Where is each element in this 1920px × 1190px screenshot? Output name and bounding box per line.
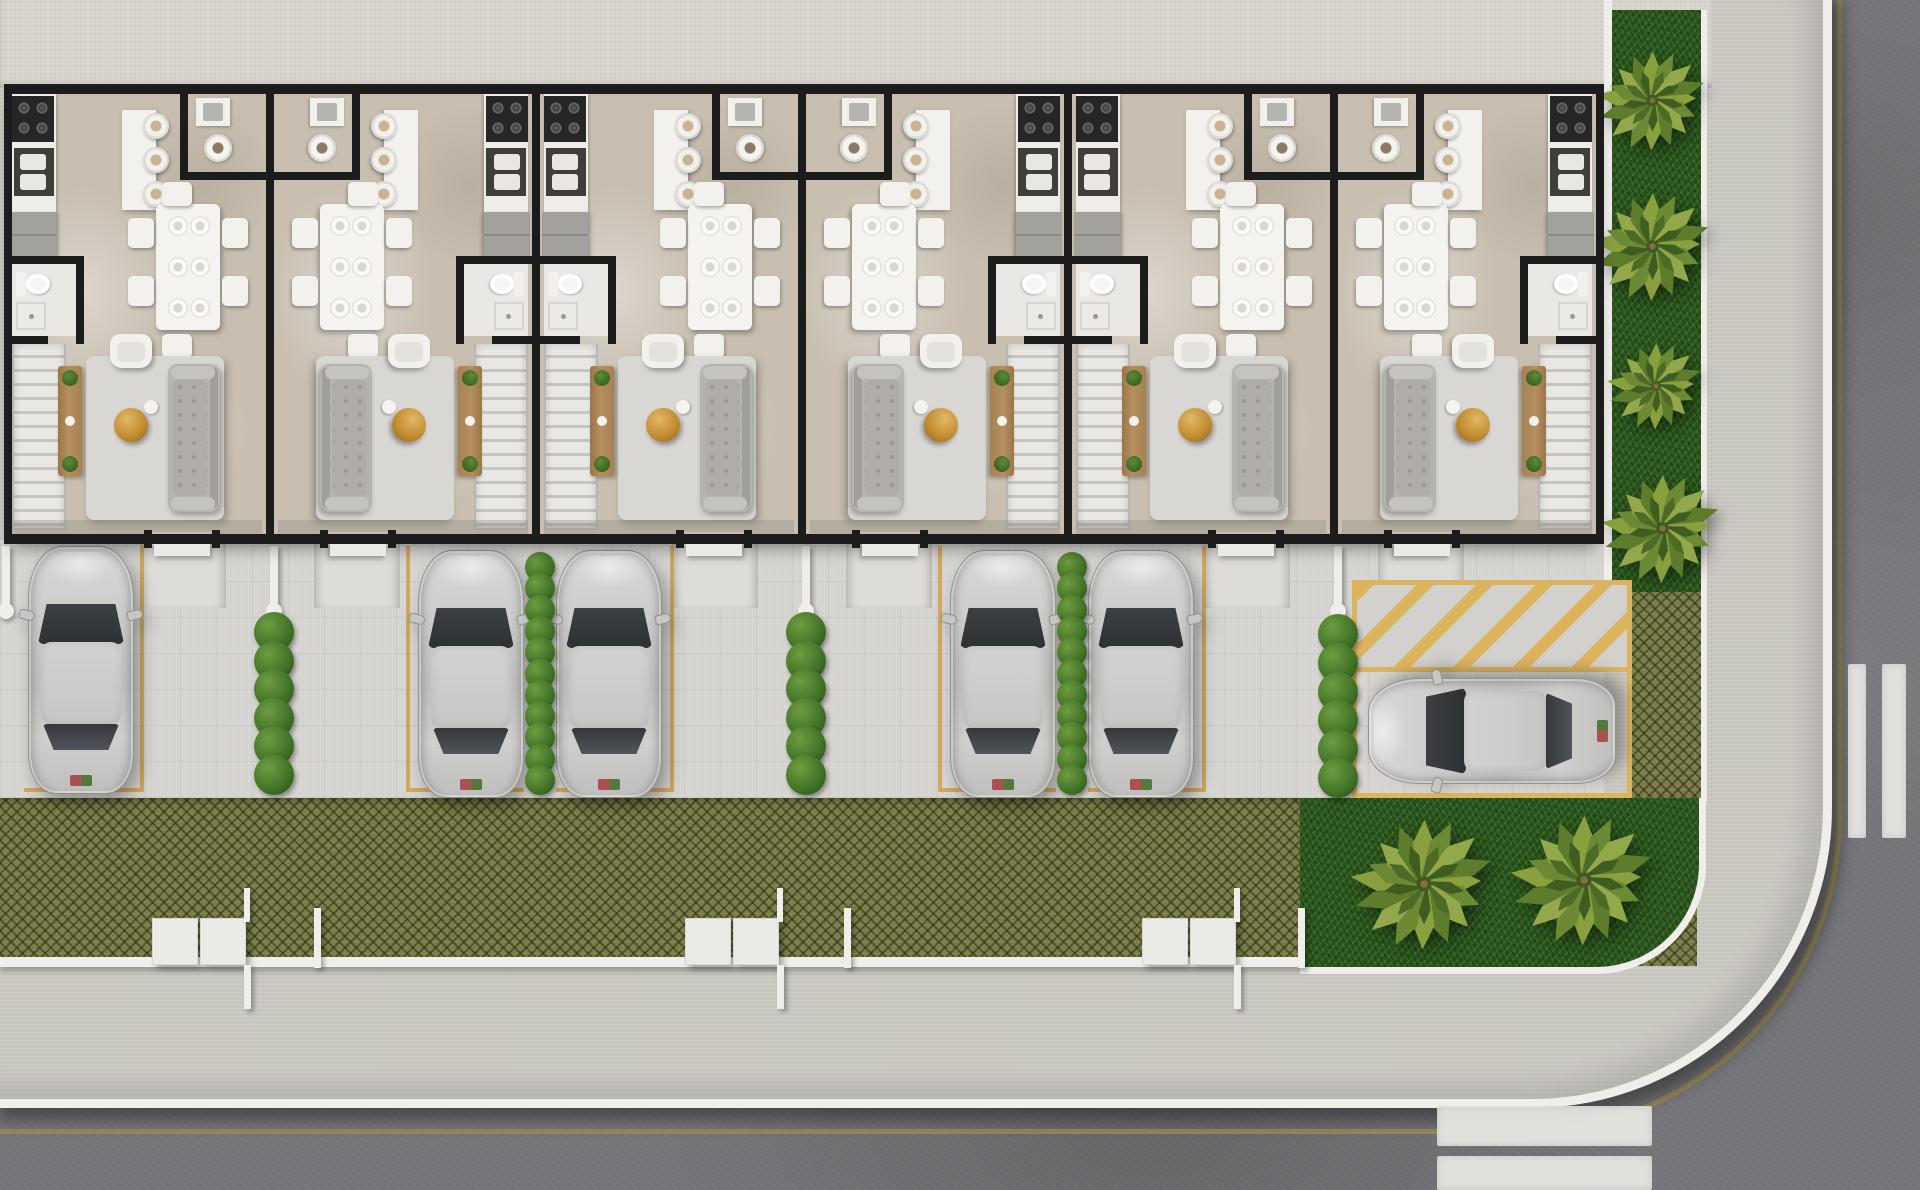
hedge-bush bbox=[786, 755, 826, 795]
bathroom-wall bbox=[1556, 336, 1596, 344]
dining-chair bbox=[918, 276, 944, 306]
plant bbox=[1126, 370, 1142, 386]
toilet-bowl bbox=[26, 274, 50, 294]
cooktop bbox=[12, 96, 54, 142]
bar-stool bbox=[1207, 147, 1233, 173]
plate bbox=[190, 298, 210, 318]
powder-room-wall bbox=[352, 92, 360, 180]
sink-bowl bbox=[1026, 154, 1052, 170]
dining-chair bbox=[1450, 276, 1476, 306]
burner-icon bbox=[1556, 102, 1568, 114]
plate bbox=[168, 298, 188, 318]
drain-icon bbox=[1570, 314, 1575, 319]
dining-chair bbox=[386, 218, 412, 248]
car-rear-window bbox=[571, 728, 647, 754]
divider-wall bbox=[1334, 546, 1342, 610]
coffee-table bbox=[924, 408, 958, 442]
vanity bbox=[842, 98, 876, 126]
vanity-sink bbox=[849, 103, 869, 121]
cooktop bbox=[486, 96, 528, 142]
toilet-tank bbox=[1578, 272, 1588, 296]
cooktop bbox=[544, 96, 586, 142]
toilet-bowl bbox=[1554, 274, 1578, 294]
drain-icon bbox=[29, 314, 34, 319]
hedge-bush bbox=[1057, 765, 1087, 795]
burner-icon bbox=[1100, 122, 1112, 134]
terrace-strip bbox=[1342, 520, 1592, 534]
burner-icon bbox=[492, 102, 504, 114]
car-hood bbox=[1102, 556, 1180, 600]
car-hood bbox=[964, 556, 1042, 600]
plate bbox=[330, 257, 350, 277]
dining-chair bbox=[348, 334, 378, 358]
shower-tray bbox=[16, 302, 46, 330]
plate bbox=[700, 216, 720, 236]
basin bbox=[840, 134, 868, 162]
sofa-armrest bbox=[857, 497, 901, 510]
car-rear-window bbox=[43, 724, 119, 750]
hedge-bush bbox=[254, 755, 294, 795]
sofa-armrest bbox=[1235, 497, 1279, 510]
drain-icon bbox=[561, 314, 566, 319]
car-badge bbox=[1130, 779, 1152, 790]
no-parking-hatch bbox=[1352, 580, 1632, 672]
sofa bbox=[1384, 364, 1436, 512]
shower-tray bbox=[1558, 302, 1588, 330]
toilet-tank bbox=[548, 272, 558, 296]
bathroom-wall bbox=[8, 336, 48, 344]
bar-stool bbox=[1435, 113, 1461, 139]
sofa-cushions bbox=[173, 380, 207, 496]
dining-chair bbox=[128, 276, 154, 306]
side-tray bbox=[1446, 400, 1460, 414]
dining-chair bbox=[824, 276, 850, 306]
party-wall bbox=[532, 84, 540, 544]
bathroom-wall bbox=[76, 256, 84, 344]
sofa-armrest bbox=[325, 366, 369, 379]
sofa-armrest bbox=[703, 366, 747, 379]
staircase bbox=[1538, 344, 1592, 530]
party-wall bbox=[266, 84, 274, 544]
side-tray bbox=[144, 400, 158, 414]
vanity-sink bbox=[1381, 103, 1401, 121]
car-roof bbox=[1101, 646, 1181, 728]
coffee-table bbox=[646, 408, 680, 442]
armchair bbox=[1174, 334, 1216, 368]
armchair bbox=[388, 334, 430, 368]
plate bbox=[352, 298, 372, 318]
sofa-cushions bbox=[865, 380, 899, 496]
kitchen-sink bbox=[14, 148, 54, 196]
car-badge bbox=[70, 775, 92, 786]
sofa bbox=[1232, 364, 1284, 512]
staircase bbox=[474, 344, 528, 530]
plant bbox=[62, 370, 78, 386]
burner-icon bbox=[1100, 102, 1112, 114]
divider-wall bbox=[270, 546, 278, 610]
sofa-armrest bbox=[857, 366, 901, 379]
car-badge bbox=[1597, 720, 1608, 742]
burner-icon bbox=[1024, 122, 1036, 134]
powder-room-wall bbox=[180, 92, 188, 180]
dining-chair bbox=[1412, 334, 1442, 358]
car-windshield bbox=[960, 608, 1046, 648]
armchair bbox=[642, 334, 684, 368]
plate bbox=[1254, 216, 1274, 236]
bathroom-wall bbox=[1072, 256, 1148, 264]
vanity bbox=[196, 98, 230, 126]
dining-chair bbox=[1226, 182, 1256, 206]
armchair-seat bbox=[649, 342, 677, 362]
burner-icon bbox=[568, 102, 580, 114]
sofa-back bbox=[1386, 368, 1394, 508]
hedge-bush bbox=[525, 765, 555, 795]
armchair-seat bbox=[927, 342, 955, 362]
armchair bbox=[110, 334, 152, 368]
fridge bbox=[1074, 212, 1120, 260]
parking-line bbox=[1202, 546, 1206, 792]
plate bbox=[352, 257, 372, 277]
bar-stool bbox=[143, 113, 169, 139]
bathroom-wall bbox=[1520, 256, 1528, 344]
sink-bowl bbox=[1084, 174, 1110, 190]
basin bbox=[308, 134, 336, 162]
toilet-tank bbox=[1080, 272, 1090, 296]
plate bbox=[1394, 298, 1414, 318]
dining-chair bbox=[1412, 182, 1442, 206]
dining-table bbox=[852, 204, 916, 330]
car-hood bbox=[432, 556, 510, 600]
bar-stool bbox=[903, 147, 929, 173]
dining-chair bbox=[918, 218, 944, 248]
vase bbox=[597, 416, 607, 426]
plate bbox=[1394, 216, 1414, 236]
unit-5 bbox=[1068, 84, 1334, 544]
burner-icon bbox=[1042, 102, 1054, 114]
plate bbox=[1232, 298, 1252, 318]
hedge-bush bbox=[1318, 758, 1358, 798]
armchair-seat bbox=[1459, 342, 1487, 362]
basin bbox=[1268, 134, 1296, 162]
dining-chair bbox=[880, 182, 910, 206]
terrace-strip bbox=[544, 520, 794, 534]
plate bbox=[700, 257, 720, 277]
party-wall bbox=[1064, 84, 1072, 544]
sink-bowl bbox=[1026, 174, 1052, 190]
powder-room-wall bbox=[712, 92, 720, 180]
plate bbox=[862, 257, 882, 277]
vanity bbox=[1260, 98, 1294, 126]
dining-table bbox=[1384, 204, 1448, 330]
burner-icon bbox=[36, 102, 48, 114]
toilet-bowl bbox=[490, 274, 514, 294]
burner-icon bbox=[510, 102, 522, 114]
fridge-seam bbox=[10, 234, 56, 236]
sink-bowl bbox=[1084, 154, 1110, 170]
car-hood bbox=[570, 556, 648, 600]
burner-icon bbox=[1574, 122, 1586, 134]
crosswalk-bar bbox=[1437, 1156, 1652, 1190]
sink-bowl bbox=[1558, 174, 1584, 190]
coffee-table bbox=[1456, 408, 1490, 442]
dining-chair bbox=[348, 182, 378, 206]
armchair-seat bbox=[1181, 342, 1209, 362]
car-windshield bbox=[566, 608, 652, 648]
dining-chair bbox=[694, 334, 724, 358]
bathroom-wall bbox=[540, 336, 580, 344]
fridge-seam bbox=[542, 234, 588, 236]
unit-3 bbox=[536, 84, 802, 544]
exterior-wall-right bbox=[1596, 84, 1604, 544]
dining-chair bbox=[162, 182, 192, 206]
toilet-bowl bbox=[558, 274, 582, 294]
fridge bbox=[1016, 212, 1062, 260]
dining-chair bbox=[292, 218, 318, 248]
kitchen-sink bbox=[546, 148, 586, 196]
rear-yard-strip bbox=[0, 0, 1712, 88]
plate bbox=[1254, 298, 1274, 318]
cooktop bbox=[1550, 96, 1592, 142]
dining-chair bbox=[292, 276, 318, 306]
side-tray bbox=[914, 400, 928, 414]
car-roof bbox=[41, 642, 121, 724]
toilet-tank bbox=[1046, 272, 1056, 296]
bathroom-wall bbox=[540, 256, 616, 264]
powder-room-wall bbox=[1244, 172, 1334, 180]
dining-chair bbox=[162, 334, 192, 358]
dining-chair bbox=[1286, 218, 1312, 248]
sofa bbox=[320, 364, 372, 512]
divider-wall bbox=[802, 546, 810, 610]
front-fence-line bbox=[0, 957, 1302, 967]
fridge-seam bbox=[484, 234, 530, 236]
terrace-strip bbox=[12, 520, 262, 534]
dining-chair bbox=[824, 218, 850, 248]
fridge-seam bbox=[1074, 234, 1120, 236]
toilet-bowl bbox=[1022, 274, 1046, 294]
plate bbox=[330, 216, 350, 236]
bar-stool bbox=[903, 113, 929, 139]
plate bbox=[722, 257, 742, 277]
sink-bowl bbox=[552, 174, 578, 190]
burner-icon bbox=[492, 122, 504, 134]
vanity-sink bbox=[1267, 103, 1287, 121]
dining-chair bbox=[386, 276, 412, 306]
car-badge bbox=[992, 779, 1014, 790]
burner-icon bbox=[18, 122, 30, 134]
plant bbox=[462, 456, 478, 472]
car-roof bbox=[569, 646, 649, 728]
vanity bbox=[310, 98, 344, 126]
car-3 bbox=[556, 550, 662, 798]
dining-chair bbox=[1192, 276, 1218, 306]
powder-room-wall bbox=[712, 172, 802, 180]
sofa bbox=[168, 364, 220, 512]
bathroom-wall bbox=[988, 256, 1064, 264]
kitchen-sink bbox=[486, 148, 526, 196]
kitchen-sink bbox=[1078, 148, 1118, 196]
site-plan-canvas bbox=[0, 0, 1920, 1190]
burner-icon bbox=[1556, 122, 1568, 134]
plant bbox=[1126, 456, 1142, 472]
shower-tray bbox=[548, 302, 578, 330]
plate bbox=[884, 298, 904, 318]
bar-stool bbox=[371, 147, 397, 173]
parking-line bbox=[406, 546, 410, 792]
vanity-sink bbox=[203, 103, 223, 121]
plate bbox=[722, 216, 742, 236]
side-tray bbox=[676, 400, 690, 414]
party-wall bbox=[798, 84, 806, 544]
bar-stool bbox=[1435, 147, 1461, 173]
coffee-table bbox=[1178, 408, 1212, 442]
burner-icon bbox=[1082, 102, 1094, 114]
building-side-trim bbox=[1604, 0, 1612, 592]
armchair bbox=[920, 334, 962, 368]
plate bbox=[1394, 257, 1414, 277]
crosswalk-bar bbox=[1848, 664, 1866, 838]
car-windshield bbox=[1426, 688, 1466, 774]
powder-room-wall bbox=[1416, 92, 1424, 180]
bathroom-wall bbox=[456, 256, 464, 344]
dining-chair bbox=[880, 334, 910, 358]
terrace-strip bbox=[278, 520, 528, 534]
powder-room-wall bbox=[1244, 92, 1252, 180]
side-tray bbox=[1208, 400, 1222, 414]
powder-room-wall bbox=[180, 172, 270, 180]
townhouse-building bbox=[4, 84, 1604, 544]
car-rear-window bbox=[433, 728, 509, 754]
powder-room-wall bbox=[884, 92, 892, 180]
vase bbox=[465, 416, 475, 426]
car-5 bbox=[1088, 550, 1194, 798]
plant bbox=[994, 370, 1010, 386]
burner-icon bbox=[1574, 102, 1586, 114]
plate bbox=[1232, 216, 1252, 236]
bathroom-wall bbox=[456, 256, 532, 264]
toilet-bowl bbox=[1090, 274, 1114, 294]
dining-chair bbox=[754, 276, 780, 306]
burner-icon bbox=[550, 102, 562, 114]
coffee-table bbox=[392, 408, 426, 442]
grass-paver-column bbox=[1632, 592, 1707, 802]
car-hood bbox=[1374, 692, 1418, 770]
bathroom-wall bbox=[1140, 256, 1148, 344]
dining-chair bbox=[222, 218, 248, 248]
dining-chair bbox=[1192, 218, 1218, 248]
sofa-back bbox=[322, 368, 330, 508]
bar-stool bbox=[675, 113, 701, 139]
plate bbox=[352, 216, 372, 236]
dining-chair bbox=[1226, 334, 1256, 358]
plate bbox=[1232, 257, 1252, 277]
car-windshield bbox=[1098, 608, 1184, 648]
dining-table bbox=[320, 204, 384, 330]
parking-line bbox=[140, 546, 144, 792]
dining-chair bbox=[222, 276, 248, 306]
sofa-armrest bbox=[325, 497, 369, 510]
dining-chair bbox=[1286, 276, 1312, 306]
plate bbox=[190, 257, 210, 277]
crosswalk-bar bbox=[1882, 664, 1906, 838]
parking-line bbox=[670, 546, 674, 792]
armchair-seat bbox=[117, 342, 145, 362]
car-roof bbox=[1464, 691, 1546, 771]
sofa bbox=[700, 364, 752, 512]
bar-stool bbox=[371, 113, 397, 139]
dining-chair bbox=[1356, 276, 1382, 306]
sink-bowl bbox=[552, 154, 578, 170]
burner-icon bbox=[550, 122, 562, 134]
plant bbox=[994, 456, 1010, 472]
dining-chair bbox=[1356, 218, 1382, 248]
toilet-tank bbox=[514, 272, 524, 296]
side-garden-strip bbox=[1612, 10, 1707, 592]
burner-icon bbox=[568, 122, 580, 134]
sofa-back bbox=[210, 368, 218, 508]
bathroom-wall bbox=[608, 256, 616, 344]
dining-chair bbox=[754, 218, 780, 248]
plate bbox=[168, 257, 188, 277]
powder-room-wall bbox=[1334, 172, 1424, 180]
fridge bbox=[10, 212, 56, 260]
powder-room-wall bbox=[802, 172, 892, 180]
car-rear-window bbox=[1546, 693, 1572, 769]
sofa bbox=[852, 364, 904, 512]
sink-bowl bbox=[20, 154, 46, 170]
fridge bbox=[484, 212, 530, 260]
parking-line bbox=[938, 546, 942, 792]
drain-icon bbox=[1038, 314, 1043, 319]
terrace-strip bbox=[1076, 520, 1326, 534]
fridge bbox=[542, 212, 588, 260]
plate bbox=[884, 216, 904, 236]
basin bbox=[204, 134, 232, 162]
burner-icon bbox=[1082, 122, 1094, 134]
sofa-armrest bbox=[171, 366, 215, 379]
bar-stool bbox=[143, 147, 169, 173]
divider-wall bbox=[2, 546, 10, 610]
sofa-cushions bbox=[1237, 380, 1271, 496]
unit-2 bbox=[270, 84, 536, 544]
unit-4 bbox=[802, 84, 1068, 544]
bathroom-wall bbox=[1024, 336, 1064, 344]
armchair-seat bbox=[395, 342, 423, 362]
bathroom-wall bbox=[1072, 336, 1112, 344]
toilet-tank bbox=[16, 272, 26, 296]
corner-lawn bbox=[1300, 798, 1706, 974]
vanity bbox=[1374, 98, 1408, 126]
exterior-wall-left bbox=[4, 84, 12, 544]
vanity-sink bbox=[317, 103, 337, 121]
plant bbox=[594, 456, 610, 472]
bar-stool bbox=[1207, 113, 1233, 139]
unit-1 bbox=[4, 84, 270, 544]
bathroom-wall bbox=[988, 256, 996, 344]
vase bbox=[65, 416, 75, 426]
party-wall bbox=[1330, 84, 1338, 544]
dining-chair bbox=[128, 218, 154, 248]
sofa-armrest bbox=[171, 497, 215, 510]
staircase bbox=[1006, 344, 1060, 530]
sofa-back bbox=[1274, 368, 1282, 508]
plate bbox=[862, 298, 882, 318]
car-badge bbox=[460, 779, 482, 790]
fridge-seam bbox=[1016, 234, 1062, 236]
sofa-cushions bbox=[333, 380, 367, 496]
plate bbox=[168, 216, 188, 236]
burner-icon bbox=[1042, 122, 1054, 134]
